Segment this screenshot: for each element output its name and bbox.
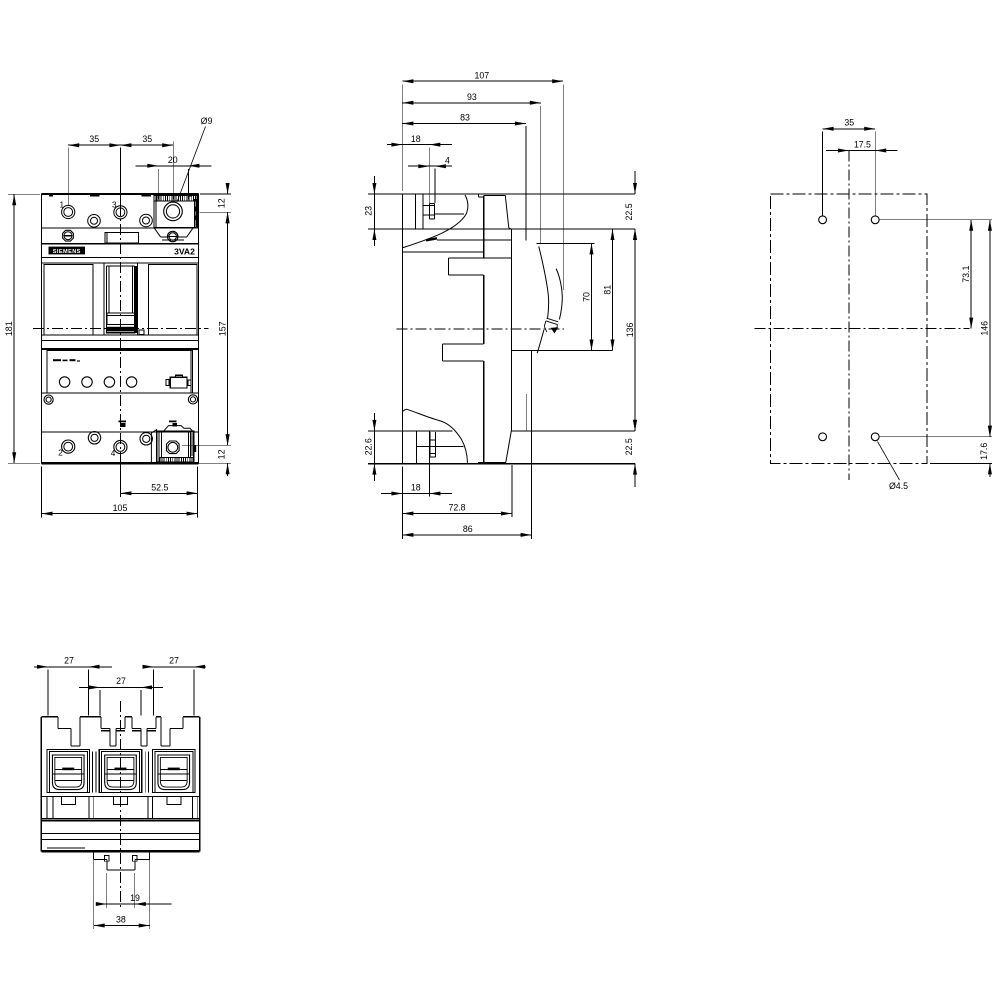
svg-text:38: 38 bbox=[116, 914, 126, 924]
svg-text:136: 136 bbox=[625, 323, 635, 338]
svg-text:3VA2: 3VA2 bbox=[174, 246, 195, 256]
svg-text:4: 4 bbox=[111, 449, 116, 458]
svg-text:73.1: 73.1 bbox=[961, 266, 971, 283]
svg-text:17.5: 17.5 bbox=[854, 140, 871, 150]
svg-text:20: 20 bbox=[168, 155, 178, 165]
svg-text:22.5: 22.5 bbox=[624, 438, 634, 455]
svg-text:3: 3 bbox=[112, 201, 117, 210]
svg-text:19: 19 bbox=[130, 893, 140, 903]
svg-text:157: 157 bbox=[217, 321, 227, 336]
svg-text:Ø9: Ø9 bbox=[201, 116, 213, 126]
svg-text:12: 12 bbox=[217, 198, 227, 208]
svg-text:70: 70 bbox=[581, 292, 591, 302]
svg-text:27: 27 bbox=[64, 656, 74, 666]
svg-text:105: 105 bbox=[113, 503, 128, 513]
svg-text:Ø4.5: Ø4.5 bbox=[889, 481, 908, 491]
svg-text:107: 107 bbox=[474, 70, 489, 80]
svg-text:86: 86 bbox=[463, 524, 473, 534]
svg-text:35: 35 bbox=[142, 134, 152, 144]
svg-text:146: 146 bbox=[980, 321, 990, 336]
svg-text:35: 35 bbox=[844, 117, 854, 127]
svg-text:52.5: 52.5 bbox=[151, 482, 168, 492]
svg-text:12: 12 bbox=[217, 449, 227, 459]
svg-text:72.8: 72.8 bbox=[448, 503, 465, 513]
svg-text:1: 1 bbox=[60, 201, 65, 210]
svg-text:93: 93 bbox=[467, 92, 477, 102]
svg-text:27: 27 bbox=[169, 656, 179, 666]
svg-text:17.6: 17.6 bbox=[979, 443, 989, 460]
svg-text:181: 181 bbox=[4, 321, 14, 336]
svg-text:4: 4 bbox=[445, 155, 450, 165]
svg-text:35: 35 bbox=[89, 134, 99, 144]
svg-text:23: 23 bbox=[363, 206, 373, 216]
svg-text:18: 18 bbox=[411, 483, 421, 493]
svg-text:SIEMENS: SIEMENS bbox=[53, 249, 81, 255]
svg-text:83: 83 bbox=[460, 113, 470, 123]
svg-text:18: 18 bbox=[411, 134, 421, 144]
svg-text:22.6: 22.6 bbox=[363, 438, 373, 455]
svg-text:22.5: 22.5 bbox=[624, 203, 634, 220]
svg-text:2: 2 bbox=[58, 449, 63, 458]
svg-text:27: 27 bbox=[116, 676, 126, 686]
svg-text:81: 81 bbox=[602, 285, 612, 295]
